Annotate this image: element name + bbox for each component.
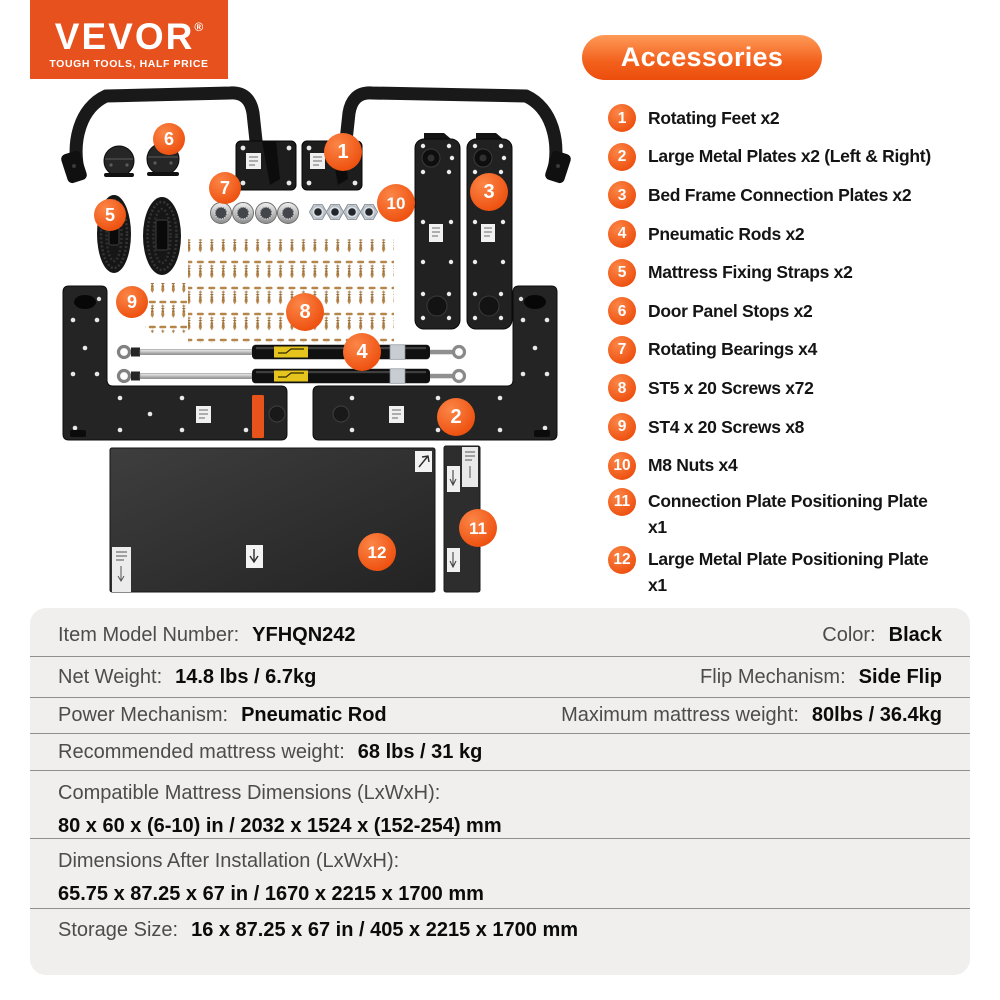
accessory-label: Rotating Feet x2 xyxy=(648,108,779,129)
accessory-item-9: 9 ST4 x 20 Screws x8 xyxy=(608,408,986,447)
spec-cell: Storage Size: 16 x 87.25 x 67 in / 405 x… xyxy=(58,919,578,942)
spec-value: 68 lbs / 31 kg xyxy=(358,741,483,764)
spec-value: Pneumatic Rod xyxy=(241,704,387,727)
accessory-item-8: 8 ST5 x 20 Screws x72 xyxy=(608,369,986,408)
accessories-list: 1 Rotating Feet x2 2 Large Metal Plates … xyxy=(608,99,986,601)
st5-screws-grid xyxy=(188,239,394,343)
part-badge-9: 9 xyxy=(116,286,148,318)
parts-diagram xyxy=(30,85,580,597)
item-number-badge: 2 xyxy=(608,143,636,171)
spec-row-mattress-dimensions: Compatible Mattress Dimensions (LxWxH): … xyxy=(30,770,970,838)
vevor-sticker xyxy=(252,395,264,438)
spec-row-recommended-weight: Recommended mattress weight: 68 lbs / 31… xyxy=(30,733,970,770)
bed-frame-connection-plate-right xyxy=(467,133,512,329)
spec-row-power-maxweight: Power Mechanism: Pneumatic Rod Maximum m… xyxy=(30,697,970,733)
mounting-bracket-left xyxy=(236,141,296,190)
item-number-badge: 10 xyxy=(608,452,636,480)
accessory-item-12: 12 Large Metal Plate Positioning Plate x… xyxy=(608,543,986,601)
spec-label: Recommended mattress weight: xyxy=(58,741,345,764)
spec-cell: Power Mechanism: Pneumatic Rod xyxy=(58,704,387,727)
spec-row-weight-flip: Net Weight: 14.8 lbs / 6.7kg Flip Mechan… xyxy=(30,656,970,697)
item-number-badge: 5 xyxy=(608,259,636,287)
accessory-label: Connection Plate Positioning Plate x1 xyxy=(648,488,948,540)
spec-value: 16 x 87.25 x 67 in / 405 x 2215 x 1700 m… xyxy=(191,919,578,942)
spec-row-model-color: Item Model Number: YFHQN242 Color: Black xyxy=(30,608,970,656)
spec-value: 14.8 lbs / 6.7kg xyxy=(175,666,316,689)
accessory-label: Pneumatic Rods x2 xyxy=(648,224,804,245)
accessory-label: Large Metal Plate Positioning Plate x1 xyxy=(648,546,948,598)
pneumatic-rod xyxy=(119,345,465,360)
item-number-badge: 12 xyxy=(608,546,636,574)
spec-cell: Item Model Number: YFHQN242 xyxy=(58,624,356,647)
accessories-header: Accessories xyxy=(582,35,822,80)
spec-label: Item Model Number: xyxy=(58,624,239,647)
spec-cell: Net Weight: 14.8 lbs / 6.7kg xyxy=(58,666,316,689)
accessory-label: M8 Nuts x4 xyxy=(648,455,737,476)
spec-value: 80lbs / 36.4kg xyxy=(812,704,942,727)
pneumatic-rod xyxy=(119,369,465,384)
part-badge-10: 10 xyxy=(377,184,415,222)
part-badge-1: 1 xyxy=(324,133,362,171)
item-number-badge: 1 xyxy=(608,104,636,132)
spec-value: Black xyxy=(889,624,942,647)
logo-tagline: TOUGH TOOLS, HALF PRICE xyxy=(49,58,208,70)
spec-value: 65.75 x 87.25 x 67 in / 1670 x 2215 x 17… xyxy=(58,883,942,906)
spec-cell: Flip Mechanism: Side Flip xyxy=(700,666,942,689)
accessory-label: Bed Frame Connection Plates x2 xyxy=(648,185,911,206)
large-metal-plate-positioning-plate xyxy=(110,448,435,592)
accessory-item-3: 3 Bed Frame Connection Plates x2 xyxy=(608,176,986,215)
spec-value: 80 x 60 x (6-10) in / 2032 x 1524 x (152… xyxy=(58,815,942,838)
accessory-item-5: 5 Mattress Fixing Straps x2 xyxy=(608,253,986,292)
accessory-item-7: 7 Rotating Bearings x4 xyxy=(608,331,986,370)
spec-label: Power Mechanism: xyxy=(58,704,228,727)
part-badge-11: 11 xyxy=(459,509,497,547)
spec-label: Maximum mattress weight: xyxy=(561,704,799,727)
accessory-label: Mattress Fixing Straps x2 xyxy=(648,262,853,283)
part-badge-8: 8 xyxy=(286,293,324,331)
part-badge-4: 4 xyxy=(343,333,381,371)
spec-value: Side Flip xyxy=(859,666,942,689)
spec-cell: Recommended mattress weight: 68 lbs / 31… xyxy=(58,741,482,764)
accessory-label: ST4 x 20 Screws x8 xyxy=(648,417,804,438)
item-number-badge: 11 xyxy=(608,488,636,516)
item-number-badge: 4 xyxy=(608,220,636,248)
spec-table: Item Model Number: YFHQN242 Color: Black… xyxy=(30,608,970,975)
accessory-item-4: 4 Pneumatic Rods x2 xyxy=(608,215,986,254)
part-badge-5: 5 xyxy=(94,199,126,231)
m8-nuts xyxy=(310,205,378,220)
accessory-label: ST5 x 20 Screws x72 xyxy=(648,378,814,399)
product-infographic: VEVOR® TOUGH TOOLS, HALF PRICE xyxy=(0,0,1000,1000)
spec-row-storage-size: Storage Size: 16 x 87.25 x 67 in / 405 x… xyxy=(30,908,970,952)
spec-label: Net Weight: xyxy=(58,666,162,689)
spec-label: Flip Mechanism: xyxy=(700,666,846,689)
item-number-badge: 6 xyxy=(608,297,636,325)
spec-value: YFHQN242 xyxy=(252,624,355,647)
item-number-badge: 3 xyxy=(608,181,636,209)
accessory-label: Rotating Bearings x4 xyxy=(648,339,817,360)
accessory-item-2: 2 Large Metal Plates x2 (Left & Right) xyxy=(608,138,986,177)
spec-row-installed-dimensions: Dimensions After Installation (LxWxH): 6… xyxy=(30,838,970,908)
accessory-label: Large Metal Plates x2 (Left & Right) xyxy=(648,146,931,167)
accessory-item-1: 1 Rotating Feet x2 xyxy=(608,99,986,138)
item-number-badge: 9 xyxy=(608,413,636,441)
spec-label: Compatible Mattress Dimensions (LxWxH): xyxy=(58,782,942,805)
accessory-item-6: 6 Door Panel Stops x2 xyxy=(608,292,986,331)
spec-label: Dimensions After Installation (LxWxH): xyxy=(58,850,942,873)
accessory-item-11: 11 Connection Plate Positioning Plate x1 xyxy=(608,485,986,543)
spec-label: Storage Size: xyxy=(58,919,178,942)
part-badge-6: 6 xyxy=(153,123,185,155)
part-badge-12: 12 xyxy=(358,533,396,571)
part-badge-2: 2 xyxy=(437,398,475,436)
bed-frame-connection-plate-left xyxy=(415,133,460,329)
part-badge-7: 7 xyxy=(209,172,241,204)
rotating-bearings xyxy=(211,203,299,224)
spec-cell: Color: Black xyxy=(822,624,942,647)
vevor-logo: VEVOR® TOUGH TOOLS, HALF PRICE xyxy=(30,0,228,79)
spec-cell: Maximum mattress weight: 80lbs / 36.4kg xyxy=(561,704,942,727)
registered-mark-icon: ® xyxy=(194,20,203,34)
accessory-label: Door Panel Stops x2 xyxy=(648,301,812,322)
part-badge-3: 3 xyxy=(470,173,508,211)
st4-screws-grid xyxy=(145,283,187,333)
logo-brand: VEVOR® xyxy=(55,9,203,55)
accessory-item-10: 10 M8 Nuts x4 xyxy=(608,446,986,485)
item-number-badge: 8 xyxy=(608,374,636,402)
item-number-badge: 7 xyxy=(608,336,636,364)
spec-label: Color: xyxy=(822,624,875,647)
